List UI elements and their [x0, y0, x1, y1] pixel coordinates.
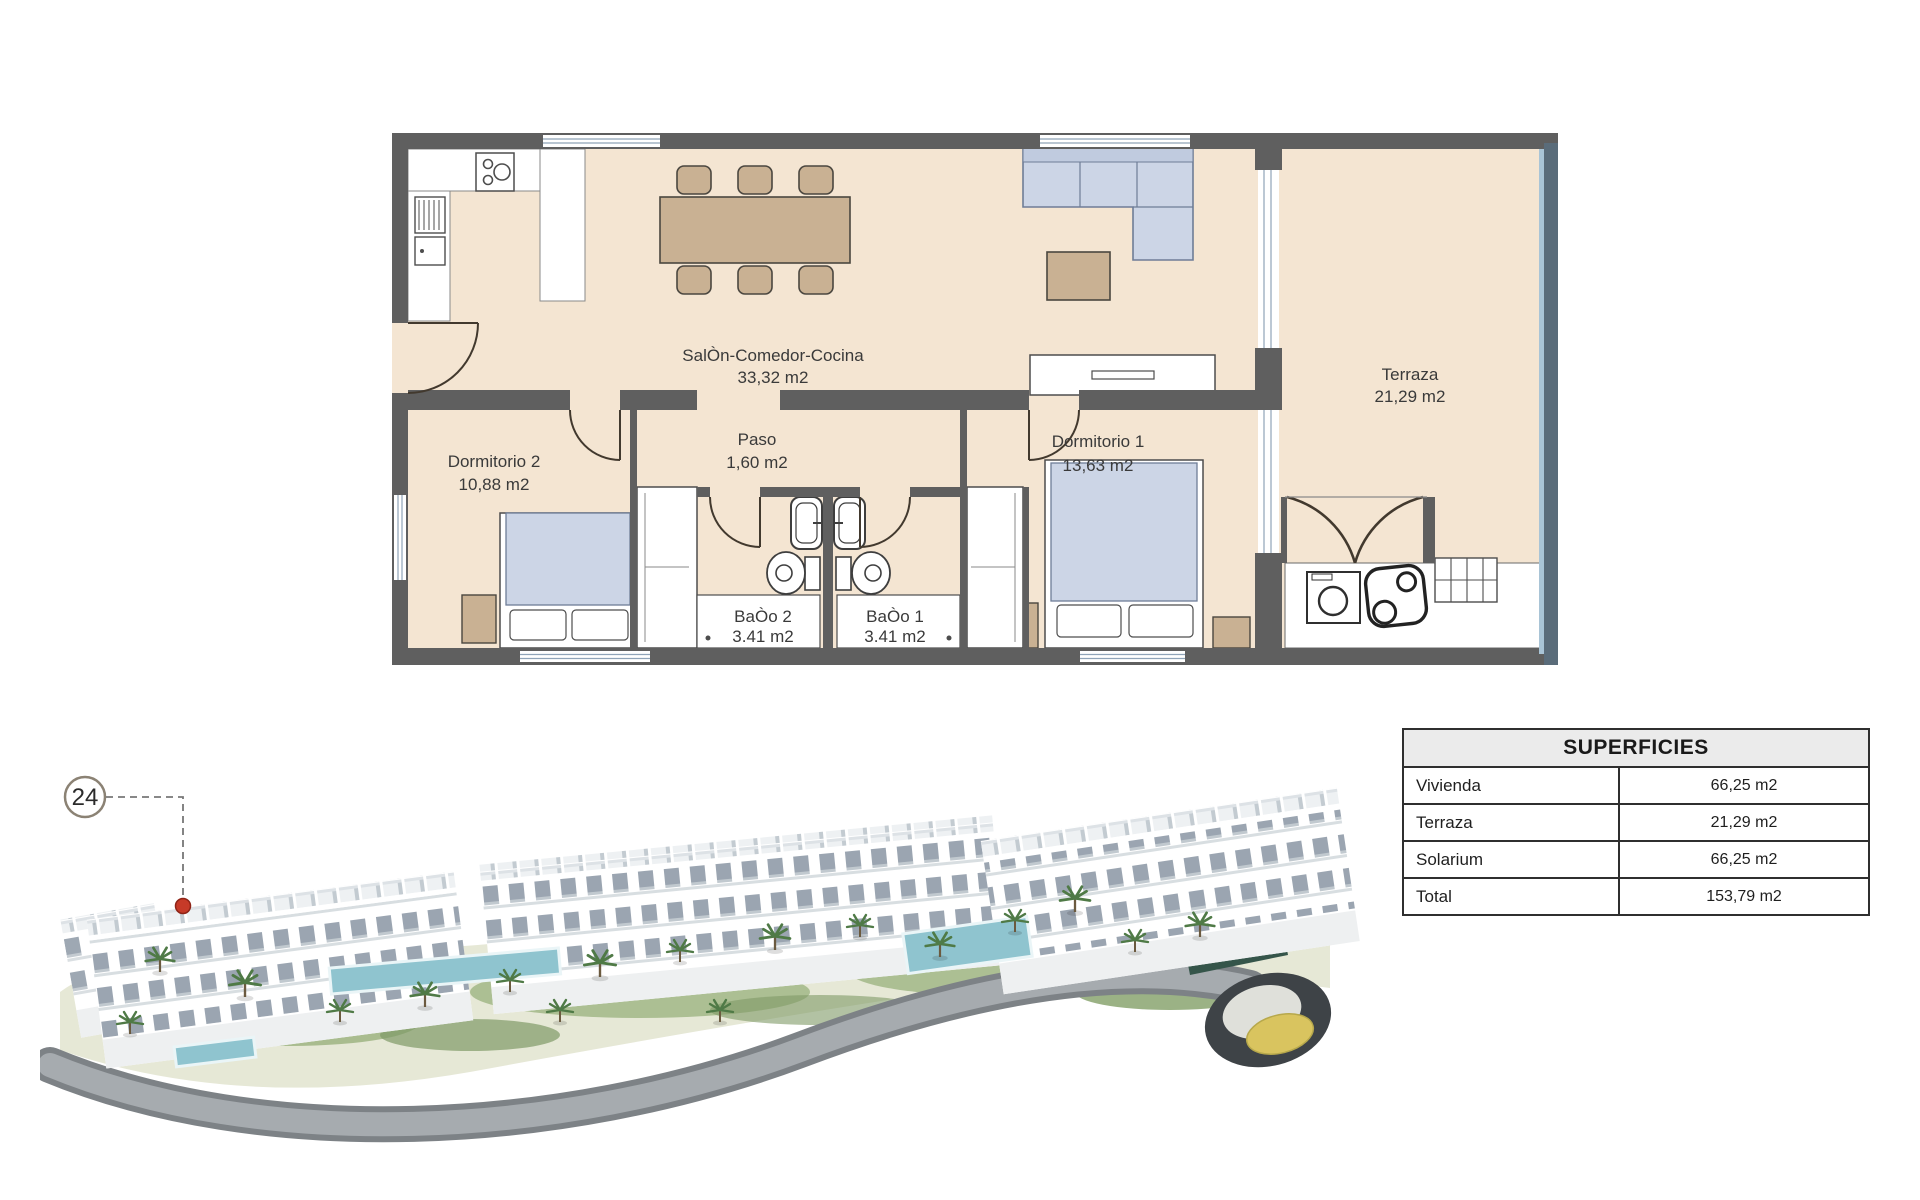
unit-badge: 24 [65, 777, 105, 817]
unit-marker-dot [176, 899, 191, 914]
terraza-glass-wall [1539, 143, 1558, 665]
svg-text:13,63 m2: 13,63 m2 [1063, 456, 1134, 475]
svg-text:10,88 m2: 10,88 m2 [459, 475, 530, 494]
unit-badge-number: 24 [72, 784, 99, 811]
room-label-bano-1: BaÒo 1 3.41 m2 [864, 607, 925, 646]
table-row-total: Total 153,79 m2 [1404, 879, 1868, 914]
floor-plan: SalÒn-Comedor-Cocina 33,32 m2 Dormitorio… [392, 133, 1558, 665]
svg-text:Dormitorio 1: Dormitorio 1 [1052, 432, 1145, 451]
stove-icon [476, 153, 514, 191]
table-row-terraza: Terraza 21,29 m2 [1404, 805, 1868, 842]
svg-text:33,32 m2: 33,32 m2 [738, 368, 809, 387]
row-label: Vivienda [1404, 768, 1620, 803]
svg-text:Paso: Paso [738, 430, 777, 449]
svg-text:21,29 m2: 21,29 m2 [1375, 387, 1446, 406]
row-value: 21,29 m2 [1620, 805, 1868, 840]
svg-text:SalÒn-Comedor-Cocina: SalÒn-Comedor-Cocina [682, 346, 864, 365]
row-label: Terraza [1404, 805, 1620, 840]
wardrobe-dormitorio-2 [637, 487, 697, 648]
room-label-bano-2: BaÒo 2 3.41 m2 [732, 607, 793, 646]
row-value: 153,79 m2 [1620, 879, 1868, 914]
svg-text:BaÒo 1: BaÒo 1 [866, 607, 924, 626]
superficies-table-title: SUPERFICIES [1404, 730, 1868, 768]
table-row-vivienda: Vivienda 66,25 m2 [1404, 768, 1868, 805]
svg-text:3.41 m2: 3.41 m2 [864, 627, 925, 646]
callout-dashed-line [106, 797, 183, 900]
sink-bano-2 [791, 497, 822, 549]
coffee-table [1047, 252, 1110, 300]
site-render: 24 [40, 720, 1400, 1180]
svg-text:1,60 m2: 1,60 m2 [726, 453, 787, 472]
row-label: Solarium [1404, 842, 1620, 877]
svg-text:3.41 m2: 3.41 m2 [732, 627, 793, 646]
row-label: Total [1404, 879, 1620, 914]
svg-text:Terraza: Terraza [1382, 365, 1439, 384]
dining-table [660, 197, 850, 263]
row-value: 66,25 m2 [1620, 842, 1868, 877]
table-row-solarium: Solarium 66,25 m2 [1404, 842, 1868, 879]
toilet-bano-2 [767, 552, 820, 594]
wardrobe-dormitorio-1 [967, 487, 1023, 648]
louvre-grille [1435, 558, 1497, 602]
tv-sideboard [1030, 355, 1215, 395]
row-value: 66,25 m2 [1620, 768, 1868, 803]
toilet-bano-1 [836, 552, 890, 594]
svg-text:BaÒo 2: BaÒo 2 [734, 607, 792, 626]
superficies-table: SUPERFICIES Vivienda 66,25 m2 Terraza 21… [1402, 728, 1870, 916]
washing-machine-icon [1307, 572, 1360, 623]
laundry-sink [1364, 564, 1428, 628]
svg-text:Dormitorio 2: Dormitorio 2 [448, 452, 541, 471]
page: SalÒn-Comedor-Cocina 33,32 m2 Dormitorio… [0, 0, 1920, 1200]
kitchen-appliances [415, 197, 445, 265]
